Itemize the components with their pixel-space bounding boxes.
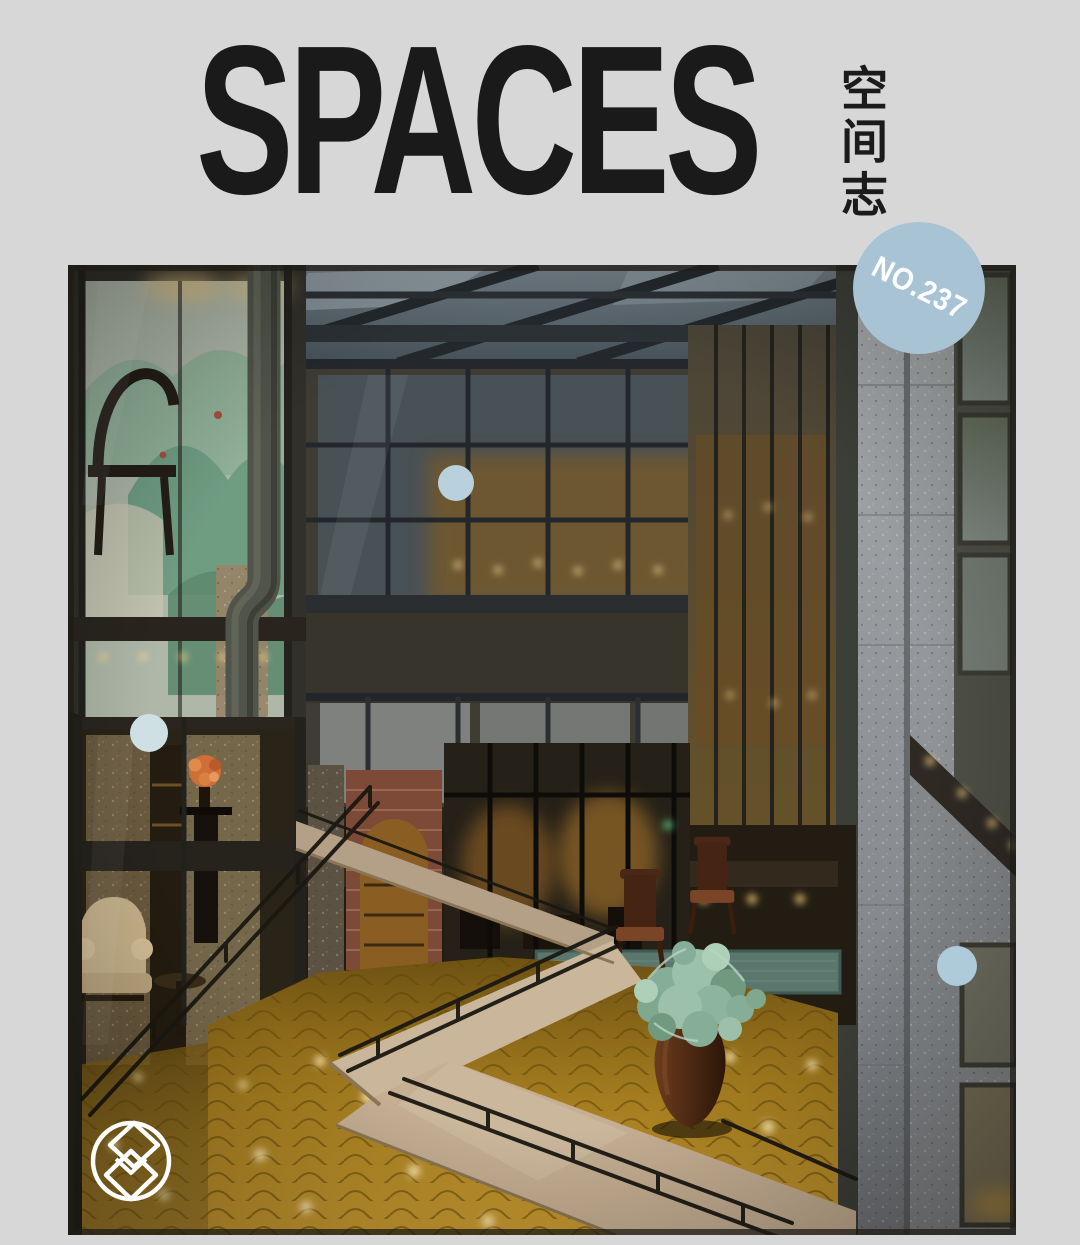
decorative-dot: [937, 946, 977, 986]
cover-photo: [68, 265, 1016, 1235]
cover-page: SPACES 空间志 NO.237: [0, 0, 1080, 1245]
masthead-title: SPACES: [196, 14, 758, 226]
masthead-subtitle-vertical: 空间志: [826, 64, 895, 223]
decorative-dot: [438, 465, 474, 501]
issue-number-badge: NO.237: [853, 222, 985, 354]
cover-photo-illustration: [68, 265, 1016, 1235]
photo-vignette: [68, 265, 1016, 1235]
issue-number-label: NO.237: [866, 249, 973, 327]
decorative-dot: [130, 714, 168, 752]
